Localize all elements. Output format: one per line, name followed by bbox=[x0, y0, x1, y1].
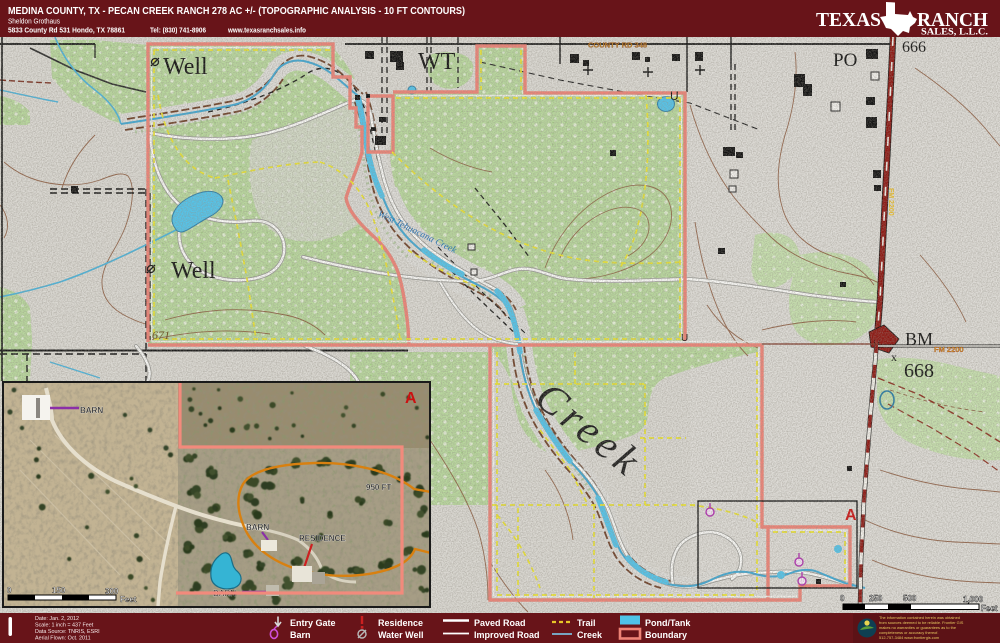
svg-text:Tel: (830) 741-8906: Tel: (830) 741-8906 bbox=[150, 28, 206, 35]
svg-text:SALES, L.L.C.: SALES, L.L.C. bbox=[921, 27, 988, 37]
svg-text:Trail: Trail bbox=[577, 618, 596, 628]
svg-text:0: 0 bbox=[840, 594, 845, 603]
svg-text:Feet: Feet bbox=[120, 595, 137, 604]
svg-text:Sheldon Grothaus: Sheldon Grothaus bbox=[8, 19, 60, 26]
svg-text:Residence: Residence bbox=[378, 618, 423, 628]
svg-text:150: 150 bbox=[52, 586, 66, 595]
svg-text:5833 County Rd 531 Hondo, TX 7: 5833 County Rd 531 Hondo, TX 78861 bbox=[8, 28, 125, 35]
svg-text:Improved Road: Improved Road bbox=[474, 630, 540, 640]
svg-text:Creek: Creek bbox=[577, 630, 603, 640]
svg-text:512-757-3484 www.frontiergis.c: 512-757-3484 www.frontiergis.com bbox=[879, 635, 939, 640]
svg-text:MEDINA COUNTY, TX - PECAN C: MEDINA COUNTY, TX - PECAN CREEK RANCH 27… bbox=[8, 6, 465, 17]
svg-text:www.texasranchsales.info: www.texasranchsales.info bbox=[227, 28, 306, 35]
svg-text:BARN: BARN bbox=[246, 523, 269, 532]
svg-text:Entry Gate: Entry Gate bbox=[290, 618, 336, 628]
svg-text:Aerial Flown: Oct. 2011: Aerial Flown: Oct. 2011 bbox=[35, 636, 91, 642]
svg-text:1,000: 1,000 bbox=[963, 595, 984, 604]
svg-text:Data Source: TNRIS, ESRI: Data Source: TNRIS, ESRI bbox=[35, 629, 100, 635]
svg-text:Barn: Barn bbox=[290, 630, 311, 640]
svg-text:Date: Jan. 2, 2012: Date: Jan. 2, 2012 bbox=[35, 616, 79, 622]
svg-text:500: 500 bbox=[903, 594, 917, 603]
svg-text:950 FT: 950 FT bbox=[366, 483, 391, 492]
svg-text:Feet: Feet bbox=[981, 604, 998, 613]
svg-text:Boundary: Boundary bbox=[645, 630, 687, 640]
svg-text:Pond/Tank: Pond/Tank bbox=[645, 618, 691, 628]
svg-text:TEXAS: TEXAS bbox=[816, 9, 881, 31]
svg-text:0: 0 bbox=[7, 586, 12, 595]
svg-text:Paved Road: Paved Road bbox=[474, 618, 526, 628]
svg-text:A: A bbox=[405, 390, 417, 407]
svg-text:RESIDENCE: RESIDENCE bbox=[299, 534, 346, 543]
svg-text:Scale: 1 inch = 437 Feet: Scale: 1 inch = 437 Feet bbox=[35, 623, 94, 629]
svg-text:250: 250 bbox=[869, 594, 883, 603]
svg-text:BARN: BARN bbox=[80, 406, 103, 415]
svg-text:Water Well: Water Well bbox=[378, 630, 424, 640]
